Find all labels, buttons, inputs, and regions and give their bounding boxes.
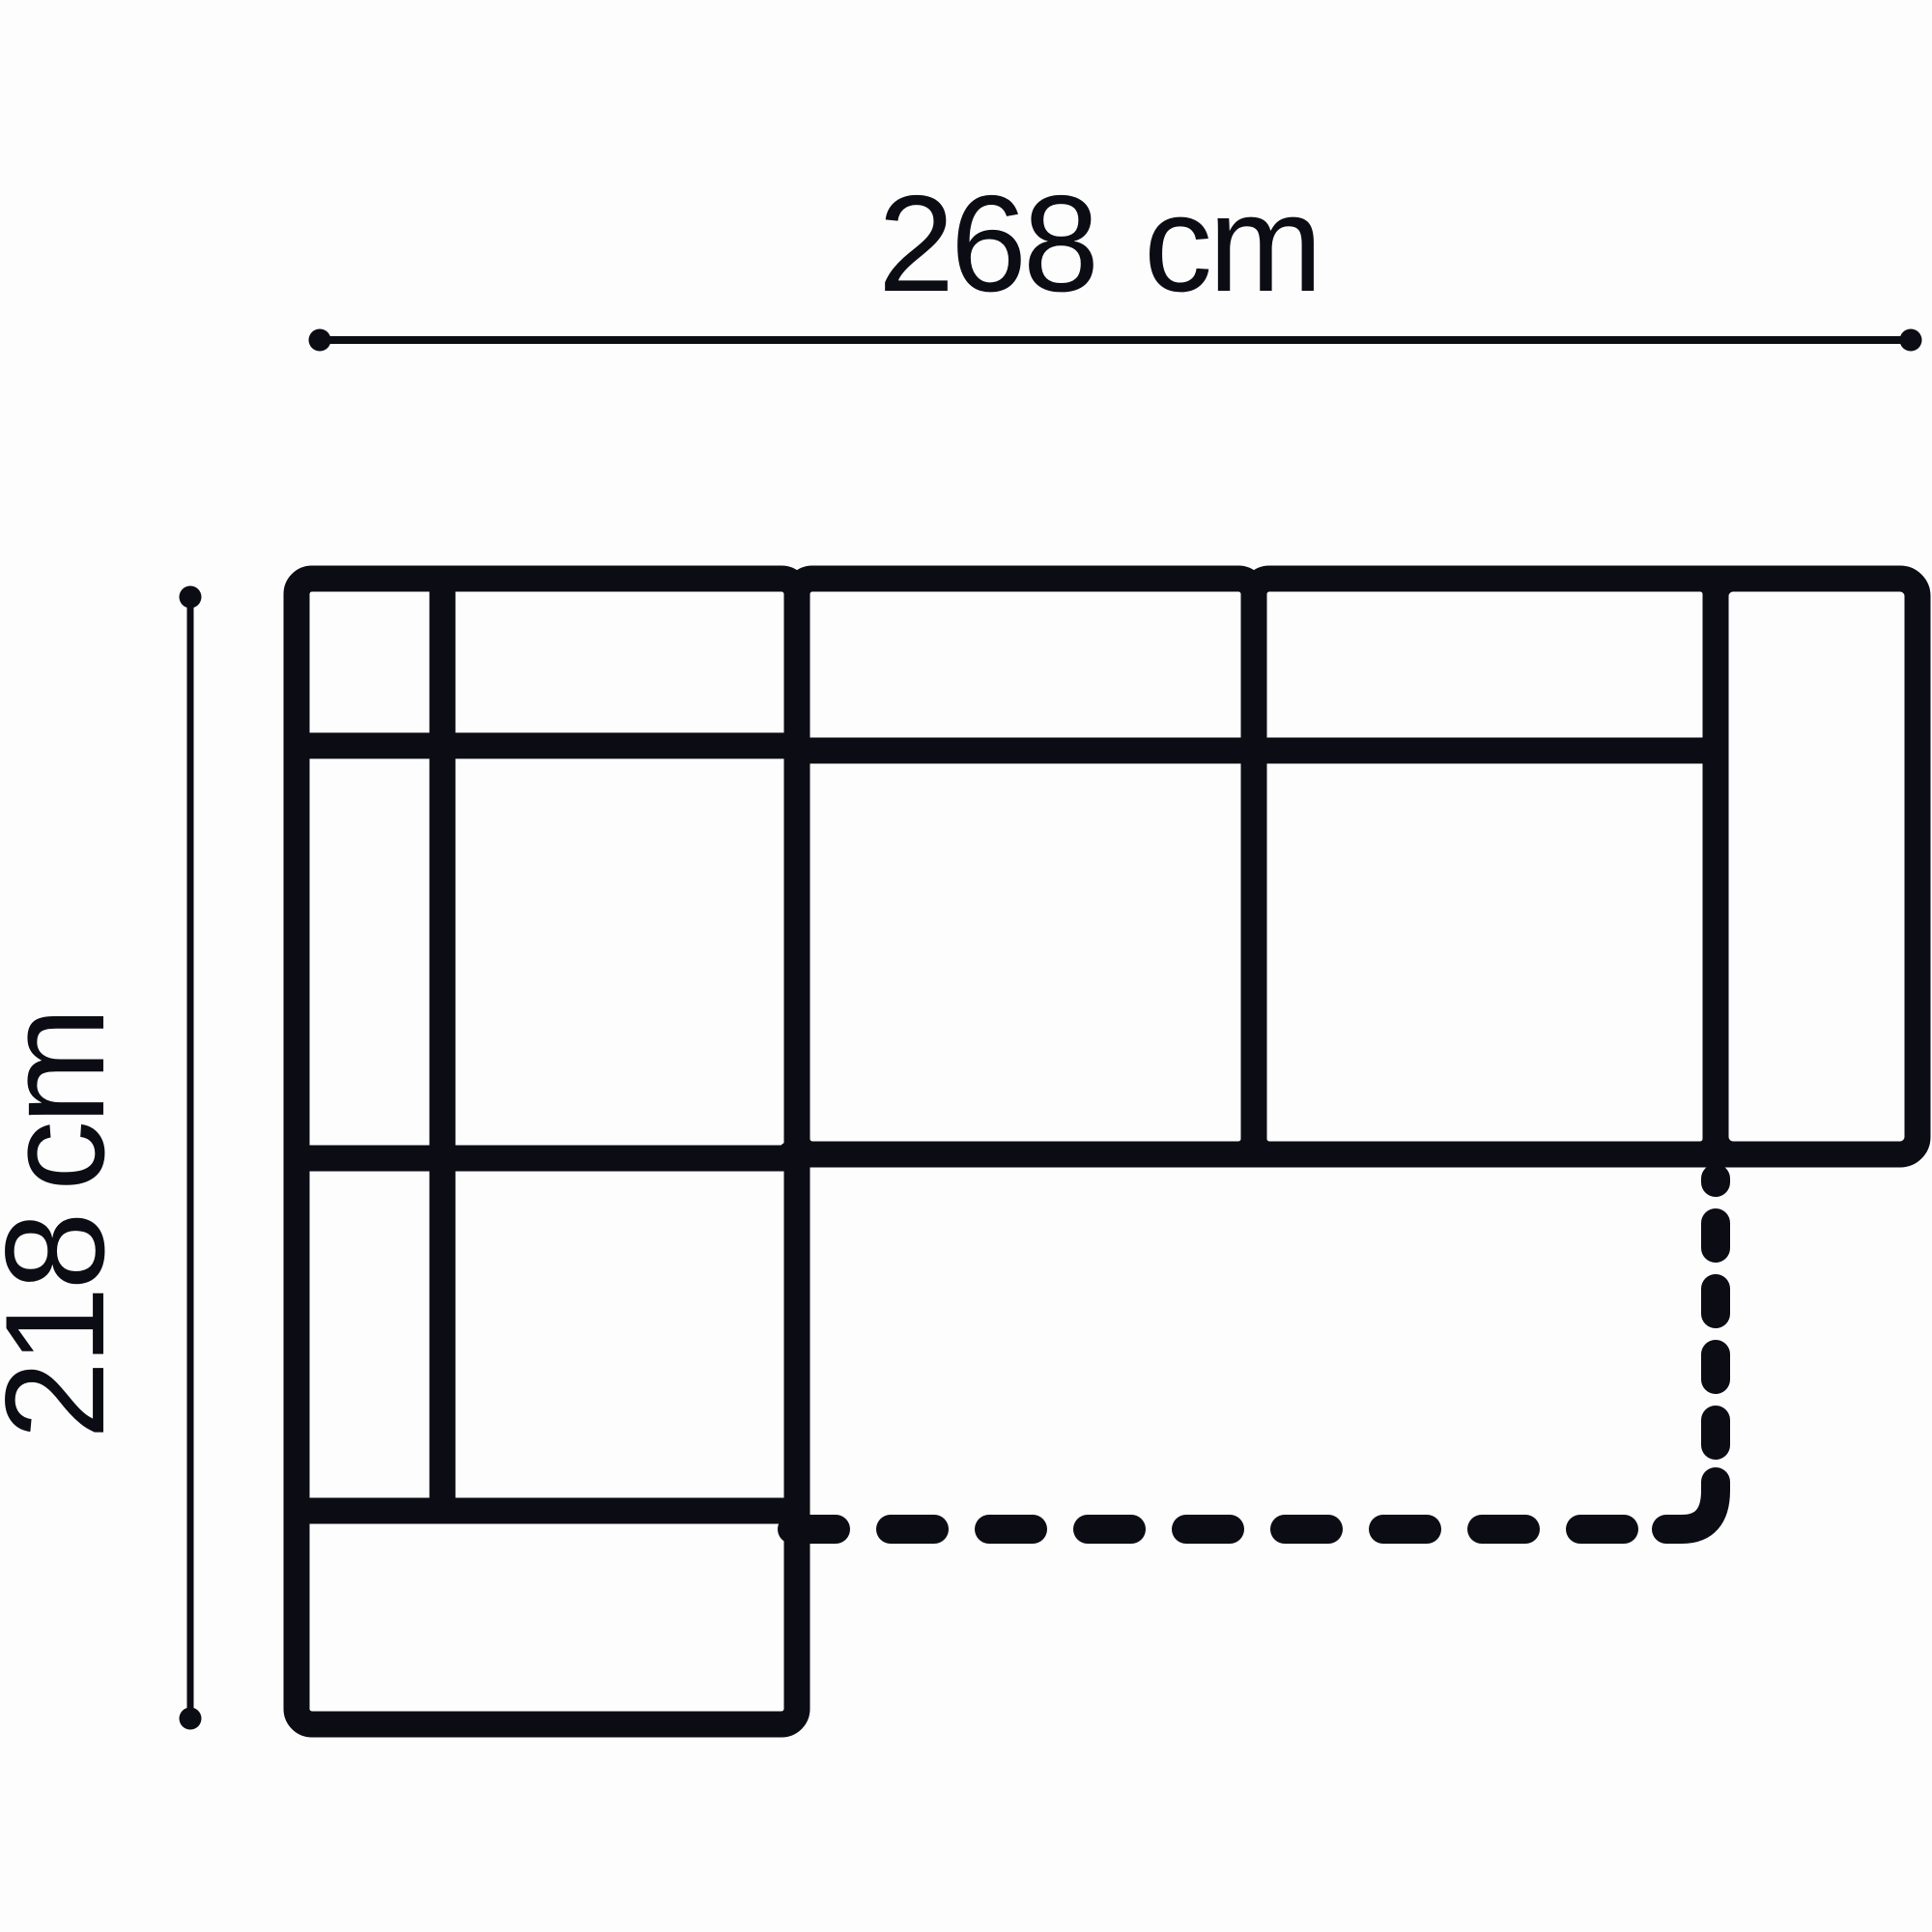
svg-text:218: 218 — [0, 1215, 133, 1439]
svg-text:cm: cm — [0, 1010, 133, 1191]
svg-text:cm: cm — [1144, 167, 1319, 321]
svg-text:268: 268 — [878, 167, 1095, 321]
